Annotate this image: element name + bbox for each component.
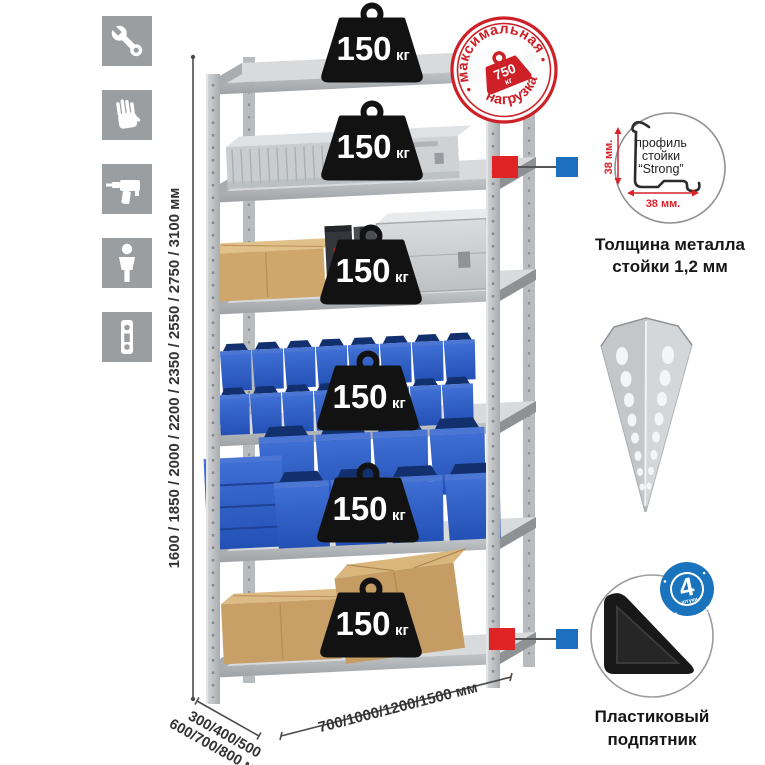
connector-red-square [492, 156, 518, 178]
wrench-icon [102, 16, 152, 66]
svg-text:кг: кг [396, 47, 410, 64]
max-load-stamp: максимальная нагрузка 750 кг [436, 2, 571, 137]
height-dimension: 1600 / 1850 / 2000 / 2200 / 2350 / 2550 … [166, 55, 195, 701]
svg-text:кг: кг [396, 145, 410, 162]
profile-label-3: “Strong” [638, 162, 683, 176]
svg-text:150: 150 [336, 30, 391, 67]
foot-caption-line1: Пластиковый [595, 707, 710, 726]
weight-badge-1: 150 кг [324, 6, 421, 81]
height-dimension-label: 1600 / 1850 / 2000 / 2200 / 2350 / 2550 … [166, 188, 183, 569]
drill-icon [102, 164, 152, 214]
corner-post-image [601, 318, 692, 512]
svg-text:кг: кг [395, 622, 409, 639]
person-icon [102, 238, 152, 288]
profile-caption-line1: Толщина металла [595, 235, 745, 254]
foot-caption-line2: подпятник [608, 730, 697, 749]
svg-text:38 мм.: 38 мм. [603, 140, 615, 175]
infographic-canvas: 1600 / 1850 / 2000 / 2200 / 2350 / 2550 … [0, 0, 765, 765]
width-dimension: 700/1000/1200/1500 мм [280, 673, 512, 740]
svg-text:кг: кг [392, 395, 406, 412]
profile-dim-vertical: 38 мм. [603, 127, 622, 185]
gloves-icon [102, 90, 152, 140]
profile-label-1: профиль [635, 136, 687, 150]
svg-text:150: 150 [332, 378, 387, 415]
connector-blue-square [556, 629, 578, 649]
product-infographic: 1600 / 1850 / 2000 / 2200 / 2350 / 2550 … [0, 0, 765, 765]
svg-text:150: 150 [335, 252, 390, 289]
svg-text:150: 150 [332, 490, 387, 527]
svg-text:38 мм.: 38 мм. [646, 198, 681, 210]
svg-text:150: 150 [336, 128, 391, 165]
plastic-foot-detail: 4 штуки в комплекте [591, 557, 721, 697]
connector-blue-square [556, 157, 578, 177]
connector-red-square [489, 628, 515, 650]
perforated-strip-icon [102, 312, 152, 362]
profile-caption-line2: стойки 1,2 мм [612, 257, 728, 276]
depth-dimension: 300/400/500 600/700/800 мм [166, 698, 274, 765]
post-profile-detail: 38 мм. 38 мм. профиль стойки “Strong” [603, 113, 725, 223]
weight-badge-2: 150 кг [324, 104, 421, 179]
sidebar-icons [102, 16, 152, 362]
svg-text:кг: кг [395, 269, 409, 286]
svg-text:кг: кг [392, 507, 406, 524]
profile-label-2: стойки [642, 149, 680, 163]
svg-text:150: 150 [335, 605, 390, 642]
width-dimension-label: 700/1000/1200/1500 мм [316, 679, 479, 736]
